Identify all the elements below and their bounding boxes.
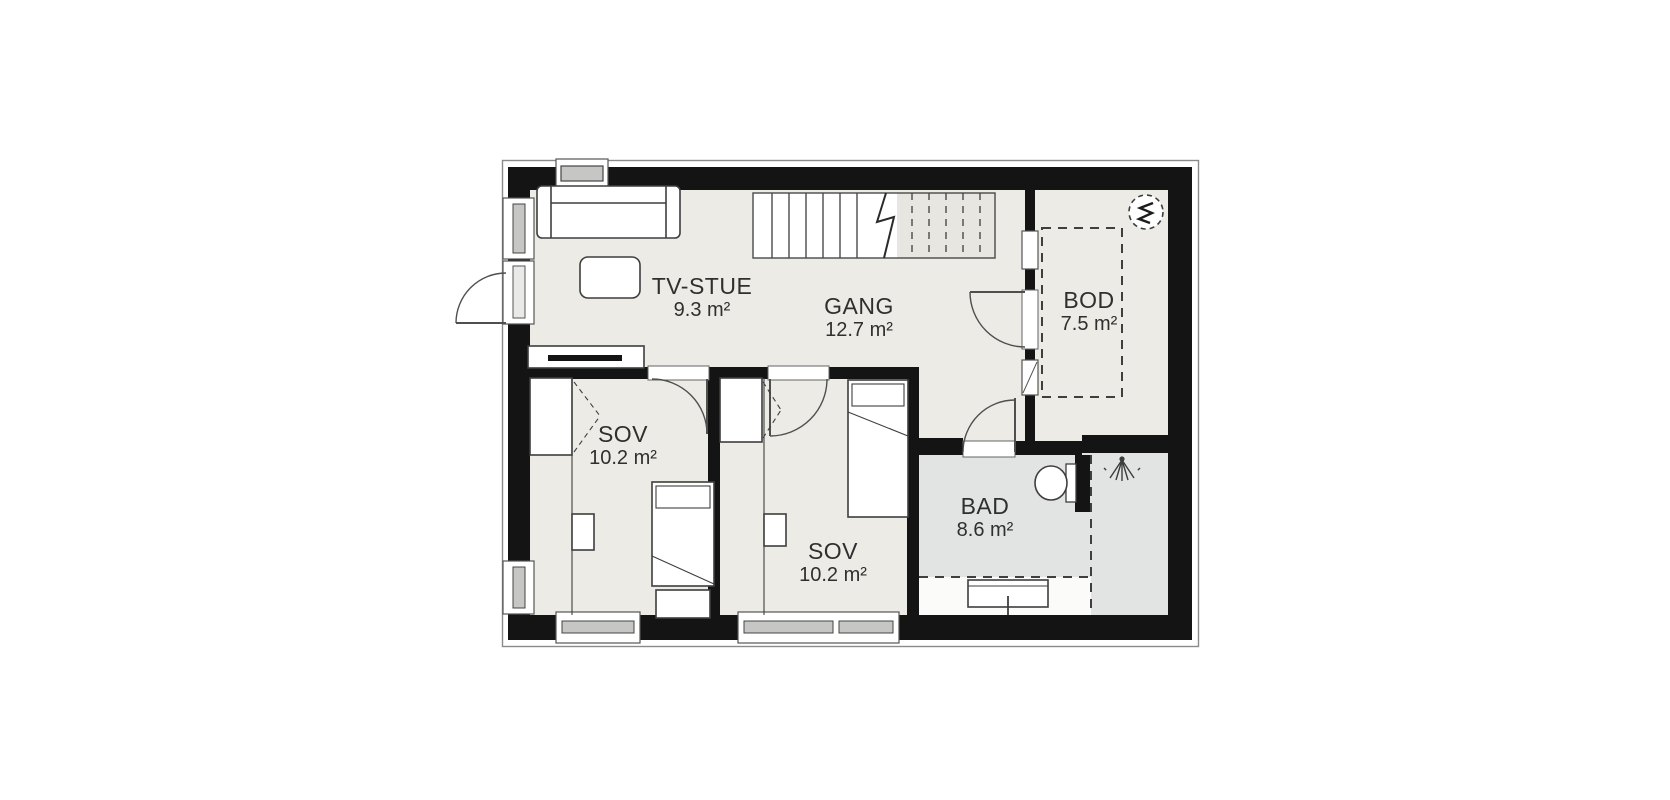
window-bottom-sov1 [556, 612, 640, 643]
water-heater-icon [1129, 195, 1163, 229]
bed-chest-sov1 [656, 590, 710, 618]
floorplan-drawing [0, 0, 1670, 800]
window-left-lower [503, 561, 534, 614]
coffee-table [580, 257, 640, 298]
door-exterior-swing [456, 273, 506, 323]
desk-sov2 [764, 514, 786, 546]
tv-bench [528, 346, 644, 368]
desk-sov1 [572, 514, 594, 550]
bed-sov2 [848, 380, 908, 517]
wall-niche-upper [1022, 231, 1038, 269]
wall-niche-lower [1022, 360, 1038, 395]
toilet [1035, 464, 1076, 502]
door-exterior-opening [503, 261, 534, 324]
window-bottom-sov2 [738, 612, 899, 643]
window-left-upper [503, 198, 534, 259]
bed-sov1 [652, 482, 714, 618]
floorplan-page: TV-STUE 9.3 m² GANG 12.7 m² BOD 7.5 m² S… [0, 0, 1670, 800]
sofa [537, 186, 680, 238]
